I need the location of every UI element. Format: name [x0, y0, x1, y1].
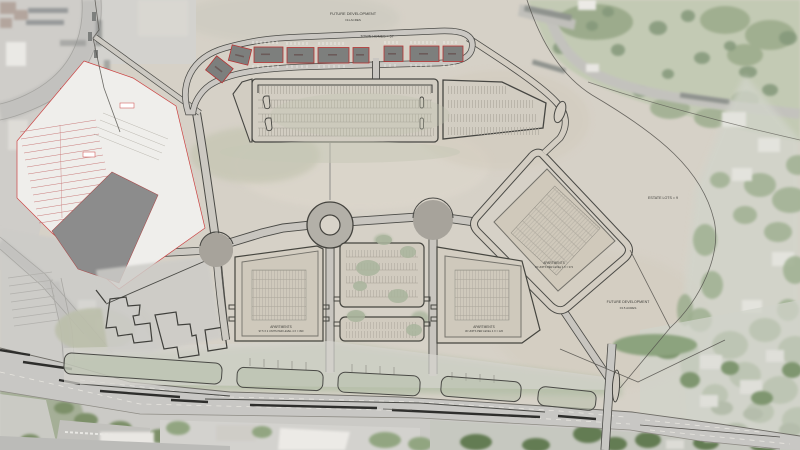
svg-text:TOWN HOMES = 57: TOWN HOMES = 57 — [360, 35, 393, 39]
svg-text:97.5 X 2 UNITS PER LEVEL 4 X: 97.5 X 2 UNITS PER LEVEL 4 X = 390 — [259, 329, 304, 333]
svg-text:FUTURE DEVELOPMENT: FUTURE DEVELOPMENT — [607, 300, 651, 304]
svg-text:±11 ACRES: ±11 ACRES — [345, 18, 361, 22]
svg-text:APARTMENTS: APARTMENTS — [270, 325, 292, 329]
svg-text:±3.5 ACRES: ±3.5 ACRES — [620, 306, 637, 310]
svg-text:FUTURE DEVELOPMENT: FUTURE DEVELOPMENT — [330, 11, 377, 16]
svg-text:30 UNITS PER LEVEL 4 X = 120: 30 UNITS PER LEVEL 4 X = 120 — [465, 329, 504, 333]
svg-text:APARTMENTS: APARTMENTS — [473, 325, 495, 329]
svg-text:93 UNITS PER LEVEL 4 X = 372: 93 UNITS PER LEVEL 4 X = 372 — [535, 265, 574, 269]
svg-text:APARTMENTS: APARTMENTS — [543, 261, 565, 265]
svg-text:ESTATE LOTS = 9: ESTATE LOTS = 9 — [648, 196, 678, 200]
